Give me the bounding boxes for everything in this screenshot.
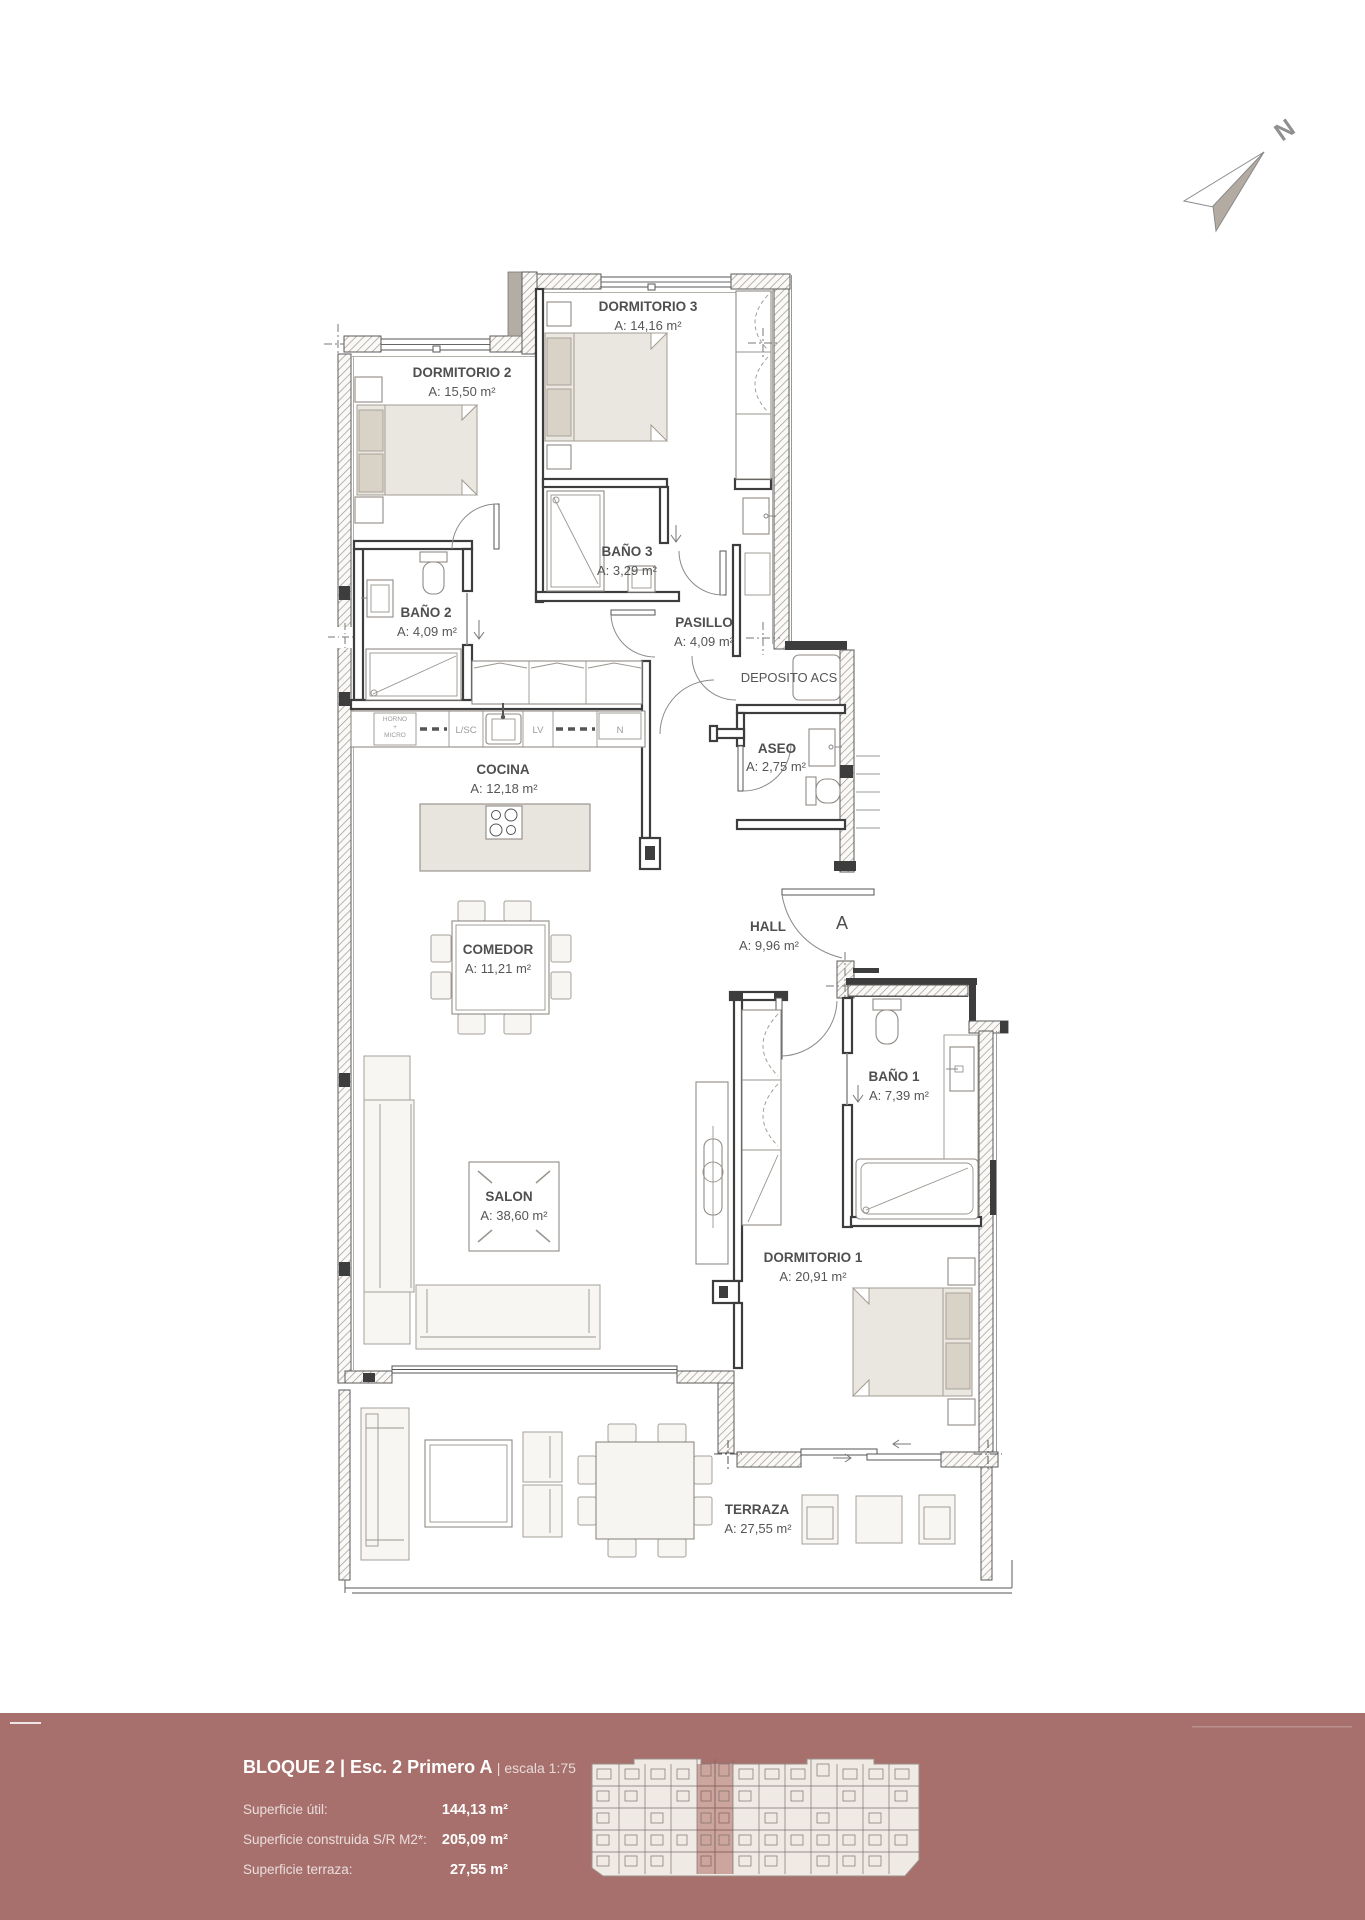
svg-text:COCINA: COCINA <box>476 762 529 777</box>
svg-text:+: + <box>393 724 397 731</box>
svg-text:ASEO: ASEO <box>758 741 796 756</box>
svg-text:PASILLO: PASILLO <box>675 615 733 630</box>
svg-text:A: 9,96 m²: A: 9,96 m² <box>739 938 800 953</box>
svg-text:205,09 m²: 205,09 m² <box>442 1832 508 1848</box>
svg-text:A: 38,60 m²: A: 38,60 m² <box>480 1208 548 1223</box>
svg-text:A: 4,09 m²: A: 4,09 m² <box>674 634 735 649</box>
svg-text:A: 27,55 m²: A: 27,55 m² <box>724 1521 792 1536</box>
svg-text:LV: LV <box>533 725 545 736</box>
svg-text:144,13 m²: 144,13 m² <box>442 1802 508 1818</box>
svg-text:BAÑO 3: BAÑO 3 <box>601 544 652 559</box>
svg-text:A: 15,50 m²: A: 15,50 m² <box>428 384 496 399</box>
svg-text:N: N <box>617 725 624 736</box>
svg-text:DORMITORIO 3: DORMITORIO 3 <box>599 299 698 314</box>
svg-text:BLOQUE 2 | Esc. 2 Primero A |: BLOQUE 2 | Esc. 2 Primero A | escala 1:7… <box>243 1757 576 1777</box>
svg-text:TERRAZA: TERRAZA <box>725 1502 790 1517</box>
svg-text:SALON: SALON <box>485 1189 532 1204</box>
svg-text:MICRO: MICRO <box>384 732 406 739</box>
svg-text:HORNO: HORNO <box>383 716 407 723</box>
svg-text:27,55 m²: 27,55 m² <box>450 1862 508 1878</box>
svg-text:A: 3,29 m²: A: 3,29 m² <box>597 563 658 578</box>
svg-text:A: 11,21 m²: A: 11,21 m² <box>465 961 532 976</box>
svg-text:Superficie terraza:: Superficie terraza: <box>243 1862 353 1877</box>
svg-text:A: 2,75 m²: A: 2,75 m² <box>746 759 807 774</box>
svg-text:Superficie construida S/R M2*:: Superficie construida S/R M2*: <box>243 1832 427 1847</box>
svg-text:DORMITORIO 2: DORMITORIO 2 <box>413 365 512 380</box>
svg-text:A: 12,18 m²: A: 12,18 m² <box>470 781 538 796</box>
svg-text:HALL: HALL <box>750 919 786 934</box>
svg-text:A: 20,91 m²: A: 20,91 m² <box>779 1269 847 1284</box>
svg-text:BAÑO 1: BAÑO 1 <box>868 1069 919 1084</box>
svg-text:A: 7,39 m²: A: 7,39 m² <box>869 1088 930 1103</box>
svg-text:Superficie útil:: Superficie útil: <box>243 1802 328 1817</box>
svg-text:A: A <box>836 913 848 933</box>
svg-text:L/SC: L/SC <box>455 725 476 736</box>
svg-text:COMEDOR: COMEDOR <box>463 942 534 957</box>
svg-text:A: 4,09 m²: A: 4,09 m² <box>397 624 458 639</box>
svg-text:BAÑO 2: BAÑO 2 <box>400 605 451 620</box>
svg-text:A: 14,16 m²: A: 14,16 m² <box>614 318 682 333</box>
svg-text:DORMITORIO 1: DORMITORIO 1 <box>764 1250 863 1265</box>
svg-text:DEPOSITO ACS: DEPOSITO ACS <box>741 670 838 685</box>
